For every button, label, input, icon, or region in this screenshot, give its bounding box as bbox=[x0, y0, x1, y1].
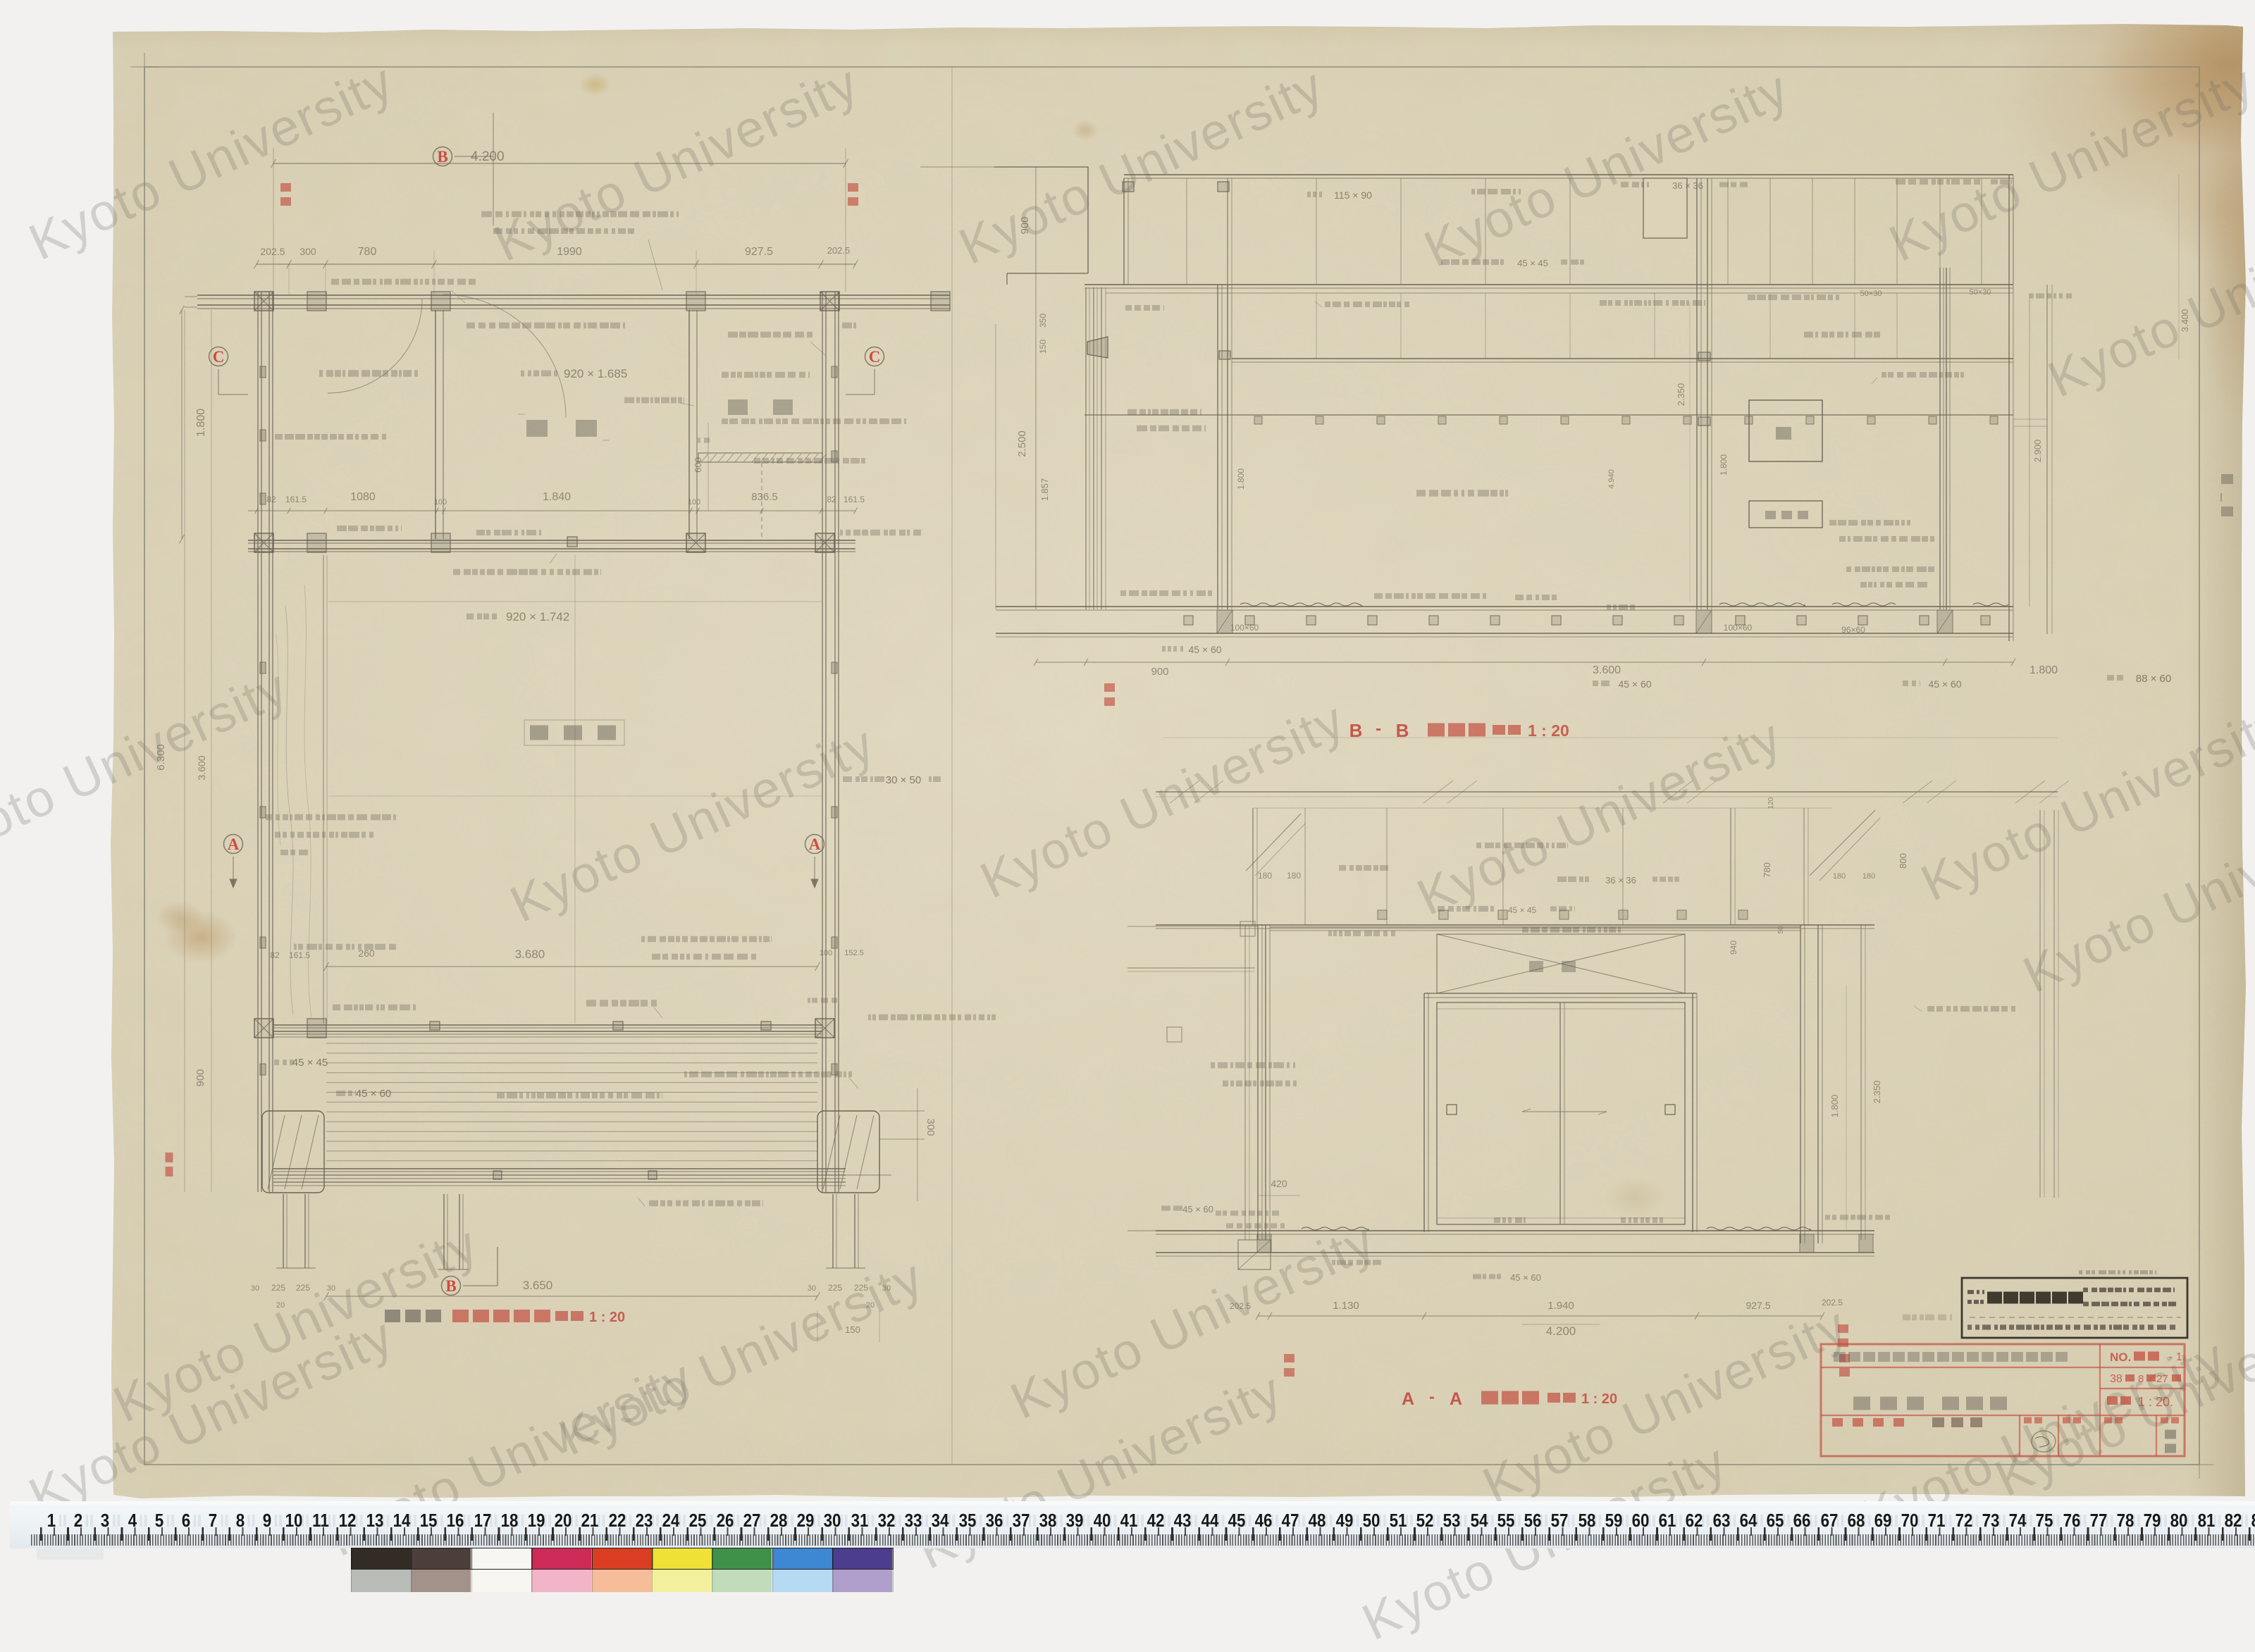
svg-text:180: 180 bbox=[1287, 871, 1301, 881]
svg-text:2.350: 2.350 bbox=[1872, 1081, 1882, 1104]
svg-text:1.800: 1.800 bbox=[1719, 454, 1729, 476]
svg-text:1 : 20: 1 : 20 bbox=[1581, 1391, 1617, 1407]
svg-text:780: 780 bbox=[1762, 862, 1772, 878]
svg-text:1.800: 1.800 bbox=[1829, 1095, 1840, 1118]
svg-text:150: 150 bbox=[845, 1324, 860, 1335]
svg-text:225: 225 bbox=[854, 1283, 868, 1293]
svg-text:1 : 20: 1 : 20 bbox=[589, 1310, 625, 1325]
svg-text:3.400: 3.400 bbox=[2180, 309, 2190, 333]
svg-text:30: 30 bbox=[327, 1284, 335, 1293]
svg-text:A: A bbox=[809, 836, 821, 853]
svg-text:940: 940 bbox=[1729, 940, 1738, 955]
svg-text:1080: 1080 bbox=[350, 491, 376, 503]
svg-text:152.5: 152.5 bbox=[844, 949, 864, 957]
svg-text:350: 350 bbox=[1038, 313, 1048, 328]
svg-text:6.300: 6.300 bbox=[155, 744, 167, 771]
svg-text:225: 225 bbox=[296, 1283, 310, 1293]
svg-text:82: 82 bbox=[266, 495, 276, 504]
svg-text:45 × 45: 45 × 45 bbox=[292, 1057, 328, 1069]
svg-text:120: 120 bbox=[1767, 797, 1775, 809]
svg-text:45 × 60: 45 × 60 bbox=[1188, 644, 1221, 655]
svg-text:3.600: 3.600 bbox=[1593, 664, 1621, 676]
svg-text:A: A bbox=[228, 836, 240, 853]
svg-text:27: 27 bbox=[2156, 1373, 2168, 1385]
svg-text:20: 20 bbox=[276, 1301, 285, 1310]
svg-text:45 × 60: 45 × 60 bbox=[1928, 678, 1961, 690]
svg-text:100: 100 bbox=[820, 949, 832, 957]
svg-text:1990: 1990 bbox=[557, 246, 582, 258]
svg-text:30: 30 bbox=[251, 1284, 259, 1293]
svg-text:225: 225 bbox=[271, 1283, 285, 1293]
svg-text:202.5: 202.5 bbox=[1230, 1301, 1251, 1311]
svg-text:NO.: NO. bbox=[2110, 1350, 2131, 1364]
svg-text:45 × 60: 45 × 60 bbox=[1182, 1204, 1213, 1215]
svg-text:300: 300 bbox=[299, 246, 316, 257]
svg-text:- 1.: - 1. bbox=[2169, 1351, 2185, 1363]
svg-text:202.5: 202.5 bbox=[827, 245, 851, 256]
svg-text:8: 8 bbox=[2138, 1373, 2144, 1385]
svg-text:161.5: 161.5 bbox=[285, 495, 307, 504]
svg-text:45 × 60: 45 × 60 bbox=[1510, 1272, 1541, 1283]
svg-text:180: 180 bbox=[1258, 871, 1272, 881]
svg-text:900: 900 bbox=[194, 1069, 206, 1086]
svg-text:836.5: 836.5 bbox=[751, 491, 778, 503]
svg-text:150: 150 bbox=[1038, 340, 1048, 354]
svg-text:260: 260 bbox=[358, 948, 375, 959]
svg-text:202.5: 202.5 bbox=[1822, 1298, 1843, 1308]
svg-text:2.500: 2.500 bbox=[1016, 430, 1028, 457]
svg-text:45 × 60: 45 × 60 bbox=[1618, 678, 1651, 690]
svg-text:50: 50 bbox=[1777, 926, 1785, 934]
svg-text:115 × 90: 115 × 90 bbox=[1334, 190, 1372, 201]
svg-text:420: 420 bbox=[1271, 1178, 1287, 1189]
svg-text:100: 100 bbox=[434, 498, 447, 507]
svg-text:50×30: 50×30 bbox=[1860, 290, 1882, 298]
svg-text:927.5: 927.5 bbox=[1746, 1300, 1770, 1311]
svg-text:2.350: 2.350 bbox=[1676, 383, 1686, 406]
svg-text:920 × 1.742: 920 × 1.742 bbox=[506, 610, 569, 623]
svg-text:1 : 20: 1 : 20 bbox=[1528, 721, 1569, 740]
svg-text:800: 800 bbox=[1898, 853, 1908, 869]
svg-text:1.840: 1.840 bbox=[543, 491, 571, 503]
svg-text:45 × 45: 45 × 45 bbox=[1508, 905, 1537, 915]
svg-text:88 × 60: 88 × 60 bbox=[2136, 673, 2171, 685]
svg-text:900: 900 bbox=[1151, 666, 1168, 678]
svg-text:1 : 20.: 1 : 20. bbox=[2138, 1395, 2173, 1409]
svg-text:50×30: 50×30 bbox=[1970, 288, 1991, 297]
svg-text:161.5: 161.5 bbox=[844, 495, 865, 504]
svg-text:36 × 36: 36 × 36 bbox=[1605, 875, 1636, 886]
svg-text:-: - bbox=[1429, 1387, 1435, 1405]
svg-text:1.800: 1.800 bbox=[2029, 664, 2058, 676]
svg-text:4.940: 4.940 bbox=[1607, 469, 1616, 489]
svg-text:A: A bbox=[1450, 1389, 1462, 1409]
svg-text:600: 600 bbox=[693, 457, 703, 473]
svg-text:C: C bbox=[869, 348, 881, 366]
svg-text:920 × 1.685: 920 × 1.685 bbox=[564, 367, 627, 380]
svg-text:161.5: 161.5 bbox=[289, 950, 310, 960]
svg-text:1.130: 1.130 bbox=[1333, 1300, 1359, 1312]
svg-text:202.5: 202.5 bbox=[260, 246, 285, 257]
svg-text:225: 225 bbox=[828, 1283, 842, 1293]
svg-text:82: 82 bbox=[270, 950, 280, 960]
svg-text:180: 180 bbox=[1862, 872, 1875, 881]
svg-text:100×60: 100×60 bbox=[1724, 623, 1753, 633]
svg-text:1.940: 1.940 bbox=[1547, 1300, 1574, 1312]
svg-text:1.857: 1.857 bbox=[1039, 478, 1050, 502]
svg-text:3.680: 3.680 bbox=[515, 948, 545, 961]
svg-text:C: C bbox=[213, 348, 225, 366]
svg-text:1.800: 1.800 bbox=[195, 409, 207, 437]
svg-text:100×60: 100×60 bbox=[1230, 623, 1259, 633]
svg-text:30 × 50: 30 × 50 bbox=[886, 774, 921, 786]
svg-text:100: 100 bbox=[688, 498, 700, 507]
svg-text:4.200: 4.200 bbox=[1546, 1324, 1576, 1338]
svg-text:38: 38 bbox=[2110, 1373, 2123, 1385]
svg-text:96×60: 96×60 bbox=[1841, 625, 1865, 635]
svg-text:900: 900 bbox=[1019, 216, 1031, 234]
svg-text:3.600: 3.600 bbox=[196, 755, 207, 780]
svg-text:36 × 36: 36 × 36 bbox=[1672, 180, 1703, 191]
svg-text:82: 82 bbox=[827, 495, 836, 504]
svg-text:180: 180 bbox=[1833, 872, 1846, 881]
svg-text:927.5: 927.5 bbox=[745, 246, 773, 258]
svg-text:30: 30 bbox=[808, 1284, 816, 1293]
svg-text:45 × 45: 45 × 45 bbox=[1517, 258, 1548, 268]
svg-text:-: - bbox=[1376, 719, 1381, 738]
svg-text:3.650: 3.650 bbox=[523, 1279, 553, 1292]
svg-text:45 × 60: 45 × 60 bbox=[356, 1088, 391, 1100]
svg-text:780: 780 bbox=[358, 246, 377, 258]
svg-text:30: 30 bbox=[882, 1284, 891, 1293]
svg-text:300: 300 bbox=[925, 1118, 937, 1136]
svg-text:B: B bbox=[445, 1277, 456, 1295]
svg-text:1.800: 1.800 bbox=[1236, 468, 1246, 490]
svg-text:B: B bbox=[1349, 720, 1363, 741]
svg-text:2.900: 2.900 bbox=[2032, 440, 2043, 463]
svg-text:20: 20 bbox=[866, 1301, 875, 1310]
svg-text:B: B bbox=[437, 148, 447, 166]
svg-text:A: A bbox=[1402, 1389, 1414, 1409]
svg-text:B: B bbox=[1396, 720, 1409, 741]
